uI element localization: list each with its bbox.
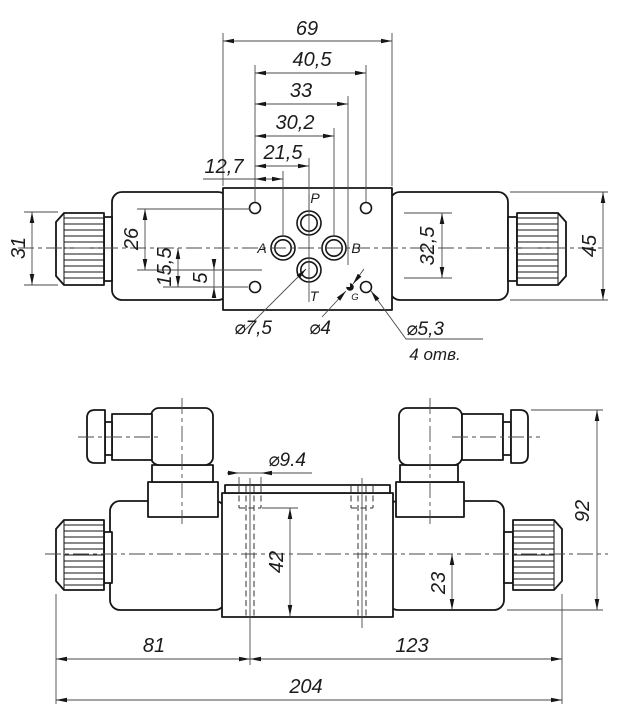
port-label-a: A [256, 240, 266, 256]
dim-overall-height: 92 [572, 500, 594, 522]
dim-15-5: 15,5 [154, 247, 176, 287]
dim-33: 33 [290, 80, 312, 102]
left-connector-neck [152, 465, 213, 482]
left-solenoid-neck-front [104, 532, 112, 583]
callout-t-hole-dia: ⌀7,5 [234, 318, 272, 339]
dim-26: 26 [121, 227, 143, 251]
dim-23: 23 [428, 572, 450, 595]
dim-total-width: 69 [296, 18, 318, 40]
right-solenoid-neck-front [504, 532, 513, 583]
left-gland-step [105, 422, 112, 455]
callout-mount-hole-note: 4 отв. [409, 345, 460, 364]
dim-42: 42 [266, 551, 288, 573]
technical-drawing-page: 69 40,5 33 30,2 21,5 12,7 31 26 15,5 5 3… [0, 0, 618, 704]
dim-12-7: 12,7 [205, 156, 245, 178]
dim-overall-length: 204 [288, 676, 322, 698]
port-label-t: T [310, 288, 320, 304]
right-solenoid-top-view [390, 192, 508, 300]
right-gland-cap [511, 410, 528, 463]
right-connector-plug [399, 408, 462, 465]
port-label-g: G [351, 292, 358, 303]
callout-mount-hole-dia: ⌀5,3 [406, 319, 444, 340]
dim-stud-dia: ⌀9.4 [268, 450, 306, 471]
dim-21-5: 21,5 [263, 142, 304, 164]
port-label-b: B [351, 240, 360, 256]
dim-solenoid-od: 45 [579, 234, 601, 257]
dim-5: 5 [190, 272, 212, 284]
dim-hole-pitch: 40,5 [293, 49, 333, 71]
right-solenoid-neck [508, 217, 517, 281]
left-connector-base [148, 482, 218, 517]
callout-g-hole-dia: ⌀4 [309, 318, 331, 339]
front-view: ⌀9.4 42 23 92 81 123 204 [45, 398, 608, 704]
dim-32-5: 32,5 [417, 226, 439, 266]
valve-body-front-view [222, 493, 393, 617]
right-connector-neck [400, 465, 458, 482]
dim-81: 81 [143, 635, 165, 657]
right-gland-step [503, 422, 511, 455]
dim-123: 123 [395, 635, 428, 657]
port-label-p: P [310, 190, 320, 206]
top-view: 69 40,5 33 30,2 21,5 12,7 31 26 15,5 5 3… [8, 18, 608, 364]
front-view-outline [56, 408, 562, 617]
valve-drawing-canvas: 69 40,5 33 30,2 21,5 12,7 31 26 15,5 5 3… [0, 0, 618, 704]
dim-30-2: 30,2 [276, 112, 315, 134]
left-gland-cap [87, 410, 105, 463]
dim-knob-od: 31 [8, 237, 30, 259]
left-solenoid-neck [104, 217, 112, 281]
